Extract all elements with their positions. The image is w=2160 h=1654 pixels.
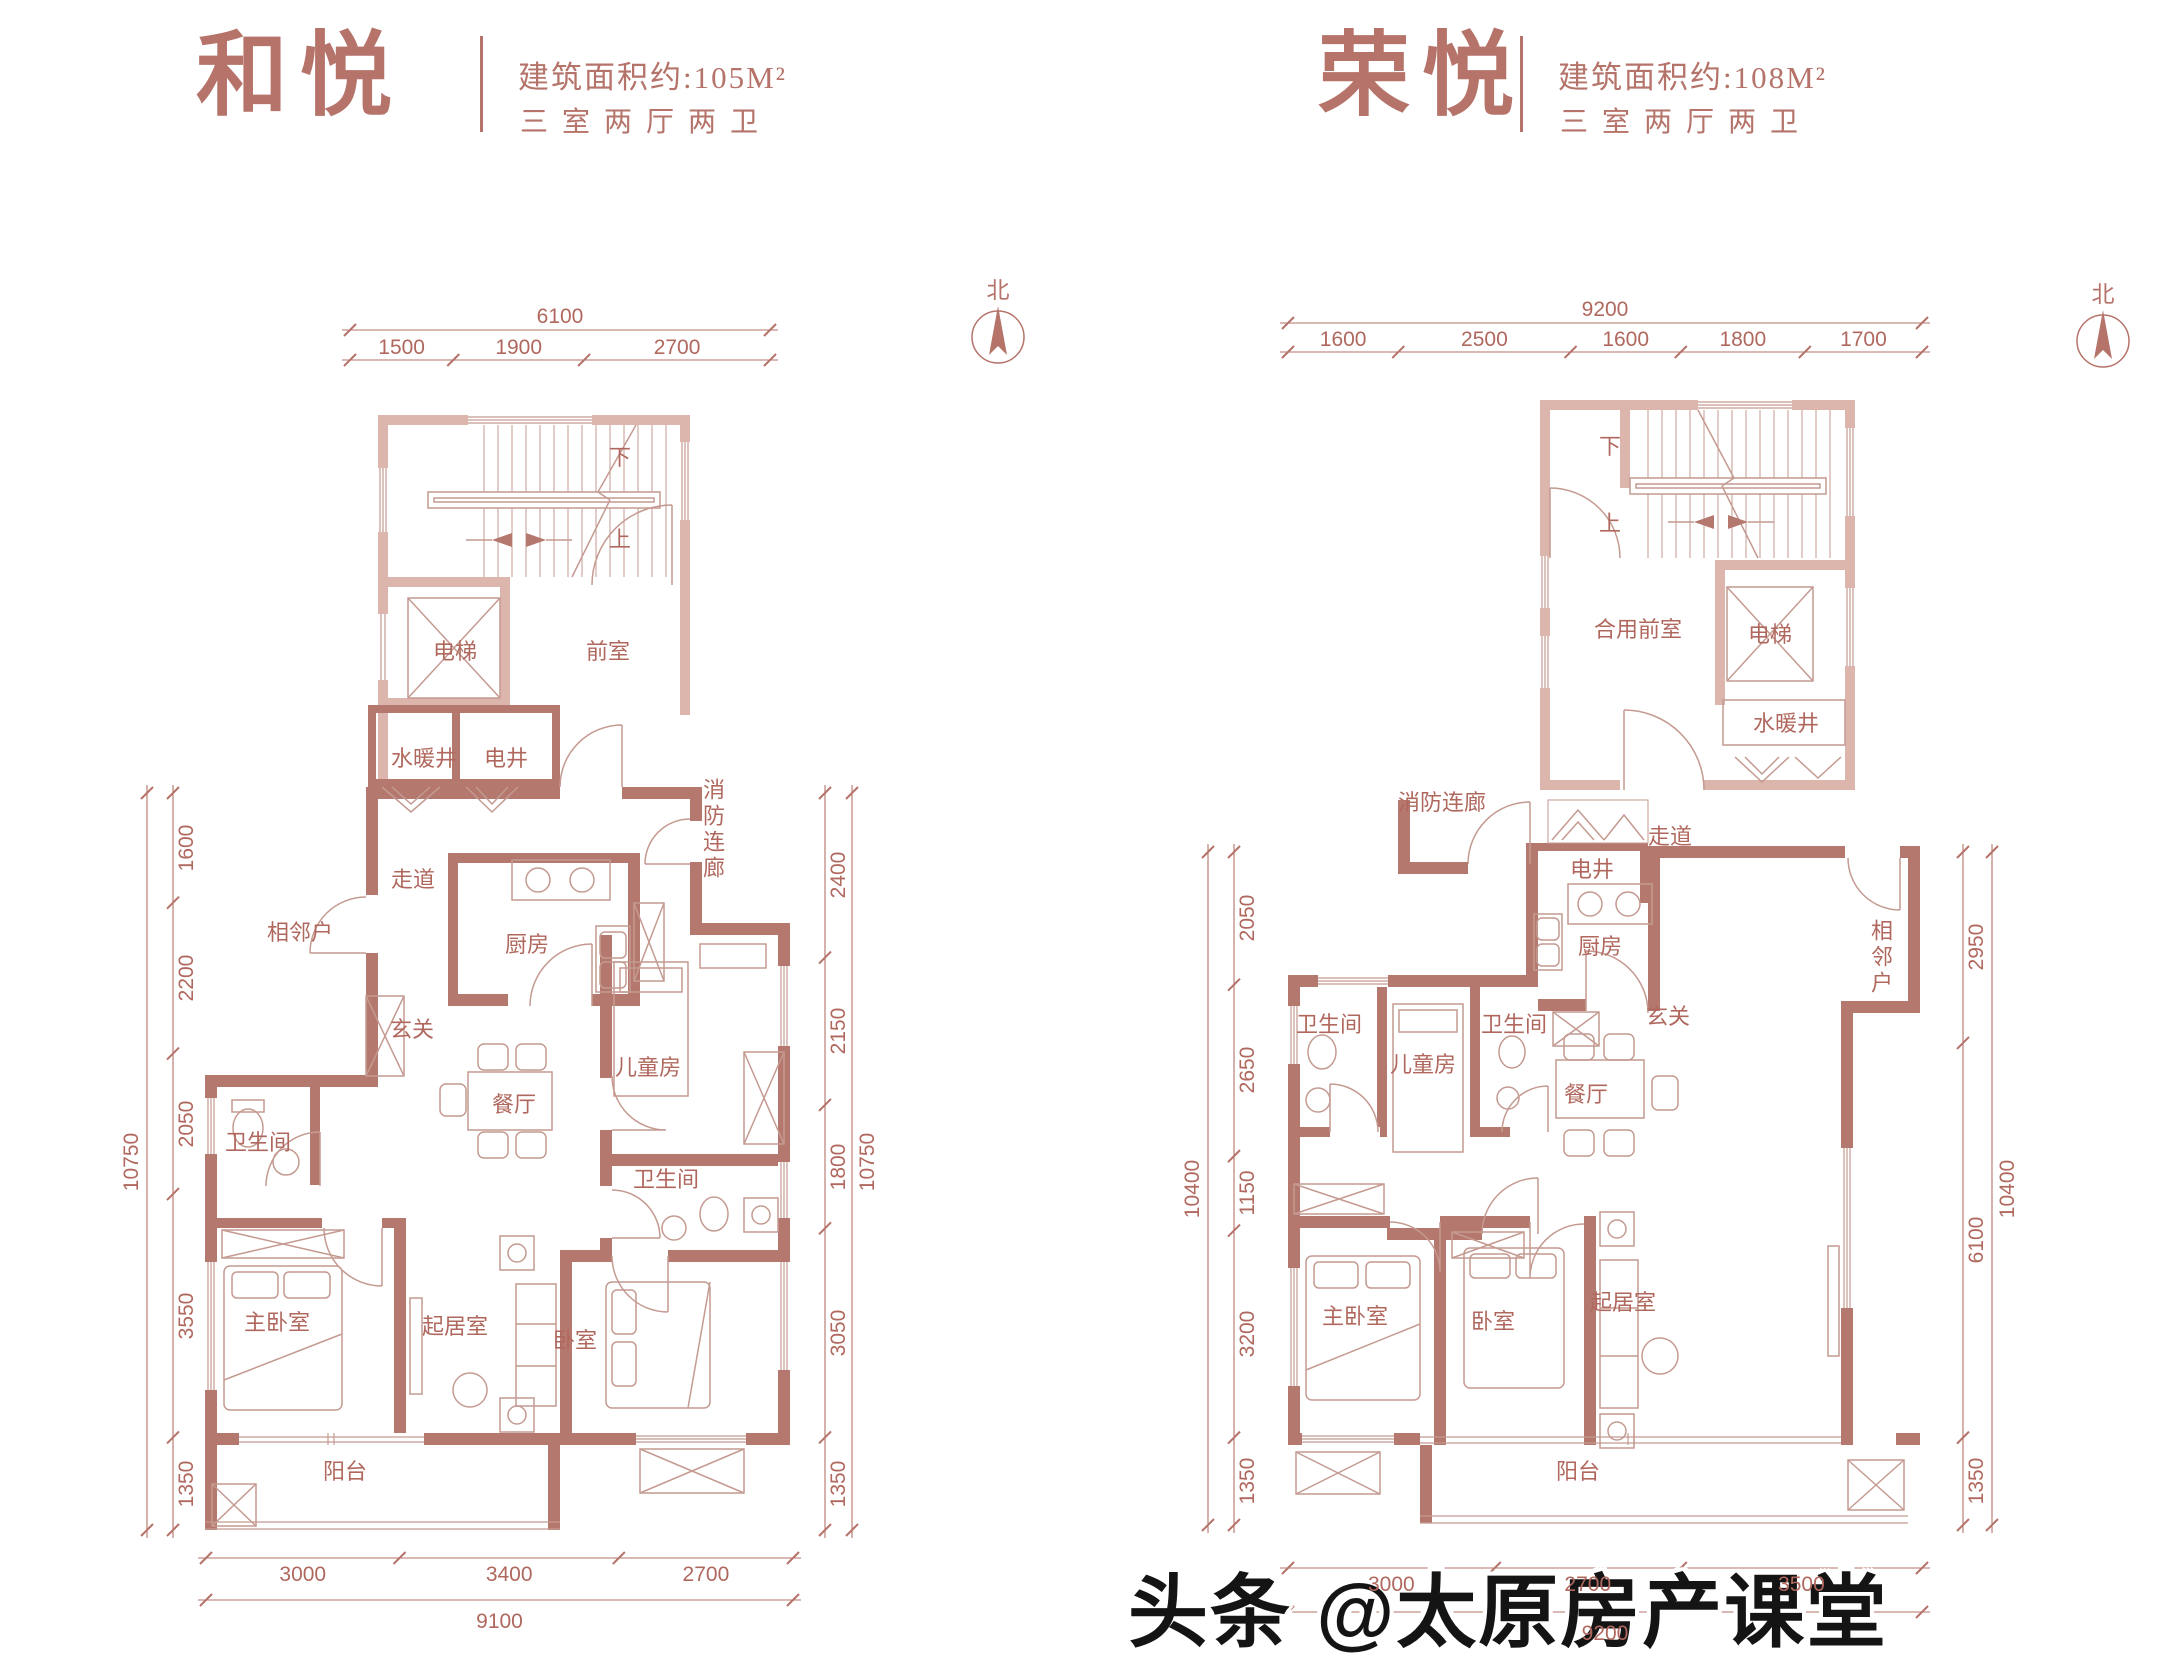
plan-a-label-bedroom: 卧室	[553, 1323, 597, 1355]
plan-b-label-neighbor: 相邻户	[1864, 919, 1896, 997]
dim-value: 9200	[1582, 298, 1629, 322]
plan-a-label-living_room: 起居室	[422, 1309, 488, 1341]
dim-value: 1800	[1719, 328, 1766, 352]
dim-value: 1350	[1965, 1458, 1989, 1505]
plan-b-label-master_bedroom: 主卧室	[1322, 1299, 1388, 1331]
plan-a-label-master_bedroom: 主卧室	[244, 1305, 310, 1337]
plan-a-label-kids_room: 儿童房	[615, 1050, 681, 1082]
plan-b-label-foyer: 玄关	[1646, 999, 1690, 1031]
dim-value: 1350	[175, 1460, 199, 1507]
dim-value: 2050	[175, 1100, 199, 1147]
plan-a-label-corridor: 走道	[391, 862, 435, 894]
plan-b-label-kids_room: 儿童房	[1390, 1047, 1456, 1079]
dim-value: 1350	[827, 1460, 851, 1507]
plan-a-title: 和悦	[196, 30, 404, 122]
plan-a-label-up: 上	[609, 522, 631, 554]
plan-b-title-divider	[1520, 36, 1523, 132]
plan-a-label-bathroom_1: 卫生间	[225, 1125, 291, 1157]
dim-value: 10750	[856, 1132, 880, 1190]
dim-value: 1800	[827, 1143, 851, 1190]
plan-b-label-shared_front_room: 合用前室	[1594, 612, 1682, 644]
plan-b-label-elevator: 电梯	[1748, 617, 1792, 649]
dim-value: 1600	[1320, 328, 1367, 352]
dim-value: 6100	[537, 305, 584, 329]
plan-a-label-fire_corridor: 消防连廊	[696, 778, 728, 882]
plan-b-label-dining: 餐厅	[1564, 1077, 1608, 1109]
plan-b-label-kitchen: 厨房	[1578, 929, 1622, 961]
plan-b-linework	[1294, 410, 1908, 1523]
dim-value: 3400	[486, 1563, 533, 1587]
plan-b-label-down: 下	[1599, 429, 1621, 461]
dim-value: 6100	[1965, 1217, 1989, 1264]
plan-a-label-neighbor: 相邻户	[267, 915, 333, 947]
dim-value: 1700	[1840, 328, 1887, 352]
plan-a-label-water_shaft: 水暖井	[391, 741, 457, 773]
plan-b-label-up: 上	[1599, 506, 1621, 538]
dim-value: 3500	[1778, 1573, 1825, 1597]
dim-value: 10750	[120, 1132, 144, 1190]
plan-a-linework	[205, 425, 784, 1529]
plan-a-label-foyer: 玄关	[390, 1012, 434, 1044]
plan-b-label-corridor: 走道	[1648, 819, 1692, 851]
dim-value: 2650	[1236, 1047, 1260, 1094]
plan-a-label-down: 下	[609, 440, 631, 472]
floorplan-flyer: 和悦 建筑面积约:105M² 三室两厅两卫 荣悦 建筑面积约:108M² 三室两…	[0, 0, 2160, 1654]
plan-a-label-front_room: 前室	[586, 634, 630, 666]
plan-a-label-kitchen: 厨房	[505, 927, 549, 959]
north-label-b: 北	[2092, 275, 2115, 309]
plan-b-area: 建筑面积约:108M²	[1558, 52, 1827, 97]
plan-b-label-bathroom_2: 卫生间	[1481, 1007, 1547, 1039]
plan-a-label-electric_shaft: 电井	[484, 741, 528, 773]
dim-value: 3000	[1368, 1573, 1415, 1597]
plan-b-label-bedroom: 卧室	[1471, 1304, 1515, 1336]
dim-value: 3550	[175, 1292, 199, 1339]
dim-value: 1350	[1236, 1458, 1260, 1505]
dim-value: 3000	[279, 1563, 326, 1587]
north-compass-b	[2077, 310, 2129, 367]
plan-a-label-balcony: 阳台	[323, 1454, 367, 1486]
north-compass-a	[972, 306, 1024, 363]
dim-value: 9100	[476, 1610, 523, 1634]
dim-value: 3050	[827, 1310, 851, 1357]
dim-value: 10400	[1181, 1159, 1205, 1217]
plan-b-layout: 三室两厅两卫	[1560, 100, 1812, 140]
dim-value: 1600	[1602, 328, 1649, 352]
dim-value: 2700	[1564, 1573, 1611, 1597]
north-label-a: 北	[987, 271, 1010, 305]
plan-b-title: 荣悦	[1318, 30, 1526, 122]
dim-value: 1500	[378, 336, 425, 360]
dim-value: 2950	[1965, 924, 1989, 971]
plan-b-label-balcony: 阳台	[1556, 1454, 1600, 1486]
plan-a-area: 建筑面积约:105M²	[518, 52, 787, 97]
plan-a-label-dining: 餐厅	[492, 1087, 536, 1119]
plan-a-core-walls	[378, 415, 690, 787]
dim-value: 9200	[1582, 1622, 1629, 1646]
plan-a-label-bathroom_2: 卫生间	[633, 1162, 699, 1194]
plan-b-label-living_room: 起居室	[1590, 1285, 1656, 1317]
dim-value: 2700	[683, 1563, 730, 1587]
dim-value: 2700	[654, 336, 701, 360]
dim-value: 1150	[1236, 1171, 1260, 1216]
dim-value: 2150	[827, 1008, 851, 1055]
dimension-lines	[141, 317, 1998, 1618]
plan-b-label-water_shaft: 水暖井	[1753, 706, 1819, 738]
dim-value: 2050	[1236, 895, 1260, 942]
plan-a-layout: 三室两厅两卫	[520, 100, 772, 140]
dim-value: 2500	[1461, 328, 1508, 352]
north-arrow-icon	[989, 306, 1007, 355]
dim-value: 1600	[175, 824, 199, 871]
dim-value: 2400	[827, 852, 851, 899]
floorplan-linework	[0, 0, 2160, 1654]
plan-a-title-divider	[480, 36, 483, 132]
dim-value: 1900	[495, 336, 542, 360]
dim-value: 3200	[1236, 1311, 1260, 1358]
watermark: 头条 @太原房产课堂	[1128, 1548, 1888, 1654]
north-arrow-icon	[2094, 310, 2112, 359]
plan-a-label-elevator: 电梯	[433, 634, 477, 666]
dim-value: 2200	[175, 955, 199, 1002]
plan-b-label-electric_shaft: 电井	[1570, 852, 1614, 884]
plan-b-label-bathroom_1: 卫生间	[1296, 1007, 1362, 1039]
dim-value: 10400	[1996, 1159, 2020, 1217]
plan-b-label-fire_corridor: 消防连廊	[1398, 785, 1486, 817]
